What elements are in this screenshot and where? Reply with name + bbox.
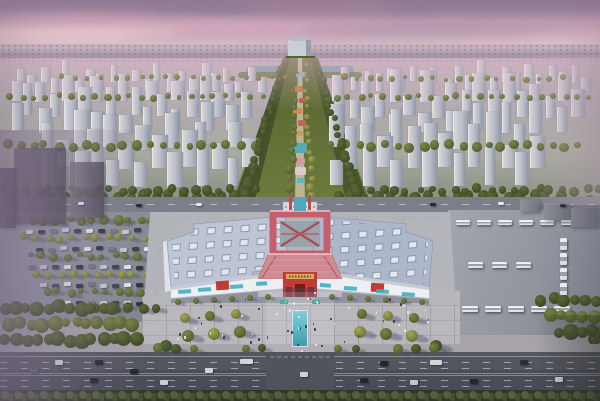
person-dot: [284, 307, 286, 310]
tree: [591, 296, 600, 307]
person-dot: [425, 309, 427, 312]
tree: [242, 345, 250, 353]
person-dot: [220, 305, 222, 308]
person-dot: [376, 311, 378, 314]
person-dot: [222, 334, 224, 337]
person-dot: [300, 327, 302, 330]
person-dot: [389, 298, 391, 301]
tree: [171, 344, 181, 354]
person-dot: [177, 338, 179, 341]
tree: [429, 343, 439, 353]
person-dot: [241, 315, 243, 318]
person-dot: [267, 336, 269, 339]
roadside-hedge: [0, 390, 600, 401]
tree: [64, 303, 75, 314]
aerial-rendering: [0, 0, 600, 401]
tree: [116, 331, 131, 346]
tree: [576, 311, 588, 323]
tree: [231, 309, 241, 319]
road-car: [95, 360, 103, 365]
tree: [175, 299, 181, 305]
tree: [265, 294, 271, 300]
tree: [570, 295, 580, 305]
generated-overlay: [0, 0, 600, 401]
person-dot: [358, 335, 360, 338]
road-car: [300, 372, 308, 377]
tree: [205, 311, 215, 321]
person-dot: [400, 303, 402, 306]
person-dot: [276, 313, 278, 316]
tree: [80, 318, 91, 329]
person-dot: [179, 333, 181, 336]
person-dot: [313, 323, 315, 326]
road-car: [410, 380, 418, 385]
tree: [190, 345, 198, 353]
person-dot: [305, 325, 307, 328]
person-dot: [398, 324, 400, 327]
tree: [329, 294, 335, 300]
tree: [393, 344, 403, 354]
tree: [153, 343, 163, 353]
road-car: [30, 368, 38, 373]
tree: [557, 295, 569, 307]
tree: [380, 328, 392, 340]
tree: [234, 326, 246, 338]
person-dot: [314, 328, 316, 331]
tree: [409, 313, 419, 323]
tree: [50, 331, 65, 346]
tree: [123, 302, 133, 312]
road-car: [380, 361, 388, 366]
person-dot: [245, 299, 247, 302]
tree: [130, 332, 144, 346]
tree: [180, 313, 190, 323]
road-car: [430, 360, 442, 365]
tree: [229, 296, 235, 302]
person-dot: [201, 322, 203, 325]
tree: [579, 295, 590, 306]
person-dot: [297, 309, 299, 312]
person-dot: [297, 344, 299, 347]
tree: [588, 310, 600, 323]
tree: [406, 330, 418, 342]
road-car: [160, 380, 168, 385]
tree: [85, 303, 96, 314]
tree: [347, 295, 353, 301]
person-dot: [393, 320, 395, 323]
road-car: [520, 360, 528, 365]
person-dot: [291, 331, 293, 334]
person-dot: [315, 344, 317, 347]
person-dot: [427, 321, 429, 324]
tree: [383, 311, 393, 321]
tree: [20, 303, 30, 313]
person-dot: [293, 302, 295, 305]
tree: [354, 326, 366, 338]
person-dot: [404, 329, 406, 332]
tree: [247, 295, 253, 301]
person-dot: [307, 336, 309, 339]
road-car: [240, 359, 253, 364]
road-car: [205, 368, 213, 373]
person-dot: [289, 309, 291, 312]
road-car: [90, 378, 98, 383]
road-car: [55, 360, 63, 365]
person-dot: [198, 317, 200, 320]
tree: [383, 297, 389, 303]
person-dot: [314, 292, 316, 295]
person-dot: [317, 301, 319, 304]
tree: [401, 298, 407, 304]
person-dot: [223, 336, 225, 339]
person-dot: [298, 316, 300, 319]
person-dot: [184, 336, 186, 339]
tree: [90, 316, 103, 329]
road-car: [360, 378, 368, 383]
tree: [365, 296, 371, 302]
person-dot: [287, 330, 289, 333]
tree: [258, 344, 266, 352]
road-car: [470, 379, 478, 384]
tree: [106, 302, 119, 315]
person-dot: [195, 327, 197, 330]
road-car: [130, 369, 138, 374]
tree: [29, 302, 43, 316]
person-dot: [301, 350, 303, 353]
person-dot: [250, 341, 252, 344]
tree: [125, 318, 139, 332]
tree: [193, 298, 199, 304]
tree: [334, 345, 342, 353]
person-dot: [344, 341, 346, 344]
tree: [535, 295, 547, 307]
person-dot: [407, 311, 409, 314]
person-dot: [307, 298, 309, 301]
tree: [357, 309, 367, 319]
person-dot: [330, 318, 332, 321]
person-dot: [321, 345, 323, 348]
person-dot: [258, 308, 260, 311]
tree: [34, 318, 50, 334]
tree: [32, 334, 43, 345]
tree: [13, 316, 26, 329]
person-dot: [334, 323, 336, 326]
tree: [211, 297, 217, 303]
road-car: [555, 377, 563, 382]
person-dot: [383, 320, 385, 323]
tree: [84, 333, 96, 345]
tree: [352, 345, 360, 353]
person-dot: [348, 307, 350, 310]
person-dot: [310, 298, 312, 301]
person-dot: [258, 338, 260, 341]
tree: [411, 344, 421, 354]
person-dot: [285, 301, 287, 304]
tree: [419, 299, 425, 305]
person-dot: [403, 305, 405, 308]
tree: [61, 318, 71, 328]
tree: [586, 324, 598, 336]
tree: [0, 334, 10, 345]
